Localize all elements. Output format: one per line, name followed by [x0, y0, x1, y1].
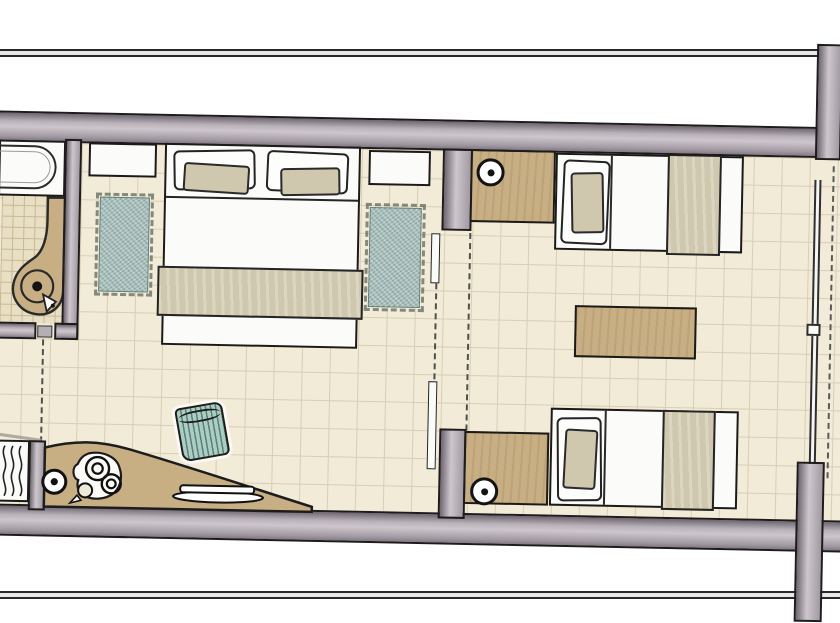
wall-bathroom-bottom-left — [0, 321, 36, 339]
partition-stub-top — [441, 148, 473, 231]
pillow-inner — [562, 428, 598, 490]
kettle — [78, 483, 92, 497]
bathtub — [0, 138, 66, 197]
bed-blanket — [666, 154, 722, 256]
stool — [174, 401, 231, 462]
vanity-sink — [0, 192, 66, 325]
mattress-line — [603, 411, 607, 505]
radiator — [0, 440, 30, 503]
window-connector-mid — [806, 324, 820, 336]
wall-bathroom-bottom-right — [54, 323, 78, 340]
reading-light-knob — [476, 158, 505, 187]
floor-plan-canvas — [0, 0, 840, 600]
radiator-coils — [0, 442, 28, 501]
bathtub-basin — [0, 144, 57, 189]
vanity-counter — [12, 197, 65, 315]
twin-bed-top — [554, 153, 744, 254]
floor-plan — [0, 0, 840, 608]
plate-top — [180, 485, 254, 493]
stool-rim — [178, 406, 221, 425]
rug-right — [368, 207, 422, 308]
rug-left — [98, 197, 150, 293]
pillow-inner — [183, 162, 251, 195]
nightstand-right — [368, 150, 431, 186]
pillow-inner — [571, 172, 605, 233]
pillow-inner — [280, 167, 340, 196]
reading-light-knob — [470, 477, 499, 506]
headboard-panel-bottom — [463, 431, 549, 506]
nightstand-left — [88, 142, 157, 177]
side-table — [574, 305, 697, 359]
headboard-panel-top — [469, 149, 556, 224]
bed-fold-line — [166, 196, 358, 202]
partition-panel-top — [430, 233, 440, 283]
twin-bed-bottom — [549, 408, 739, 510]
wall-right-upper — [815, 44, 840, 160]
bed-blanket — [661, 410, 716, 511]
bathtub-basin-inner-line — [0, 150, 51, 183]
bed-blanket — [157, 266, 364, 320]
partition-panel-bottom — [427, 381, 438, 469]
double-bed — [161, 142, 361, 349]
wall-right-lower — [794, 462, 825, 623]
door-pivot-tab — [37, 325, 52, 337]
partition-stub-bottom — [438, 428, 467, 519]
